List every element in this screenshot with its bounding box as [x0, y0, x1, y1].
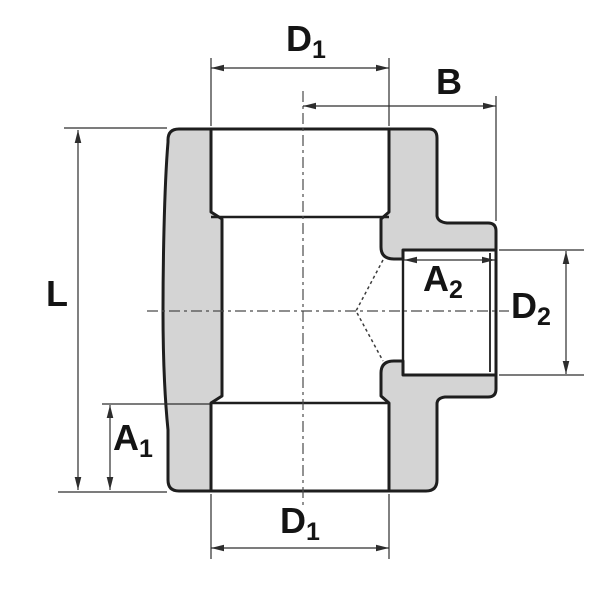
label-d1-bottom: D1 [280, 503, 320, 550]
arrowhead-left [211, 545, 224, 552]
arrowhead-right [483, 103, 496, 110]
arrowhead-down [563, 361, 570, 374]
label-d1-bottom-main: D [280, 500, 306, 541]
label-l-main: L [46, 273, 68, 314]
label-d1-bottom-sub: 1 [306, 518, 320, 546]
label-a2: A2 [423, 261, 463, 308]
label-b-main: B [436, 61, 462, 102]
label-d2-sub: 2 [537, 303, 551, 331]
label-a2-sub: 2 [449, 276, 463, 304]
arrowhead-left [303, 103, 316, 110]
label-a1: A1 [113, 420, 153, 467]
label-l: L [46, 276, 68, 323]
label-d2-main: D [511, 285, 537, 326]
part-body [163, 129, 496, 491]
arrowhead-left [211, 65, 224, 72]
label-d1-top: D1 [286, 21, 326, 68]
arrowhead-right [376, 65, 389, 72]
arrowhead-right [376, 545, 389, 552]
technical-drawing-canvas: D1 B L A2 D2 A1 D1 [0, 0, 607, 607]
part [163, 129, 496, 491]
arrowhead-down [107, 477, 114, 490]
arrowhead-right [482, 257, 495, 264]
label-d2: D2 [511, 288, 551, 335]
label-a1-sub: 1 [139, 435, 153, 463]
label-b: B [436, 64, 462, 111]
arrowhead-up [75, 130, 82, 143]
label-d1-top-main: D [286, 18, 312, 59]
label-a1-main: A [113, 417, 139, 458]
dim-d1-top [211, 58, 389, 126]
arrowhead-down [75, 477, 82, 490]
arrowhead-left [404, 257, 417, 264]
label-a2-main: A [423, 258, 449, 299]
arrowhead-up [563, 251, 570, 264]
dimensions [58, 58, 584, 559]
label-d1-top-sub: 1 [312, 36, 326, 64]
